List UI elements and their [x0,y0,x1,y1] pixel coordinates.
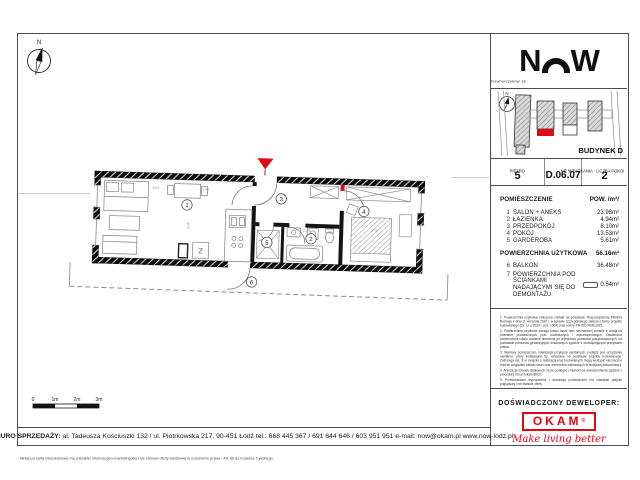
now-logo-w: W [571,49,599,73]
scale-0: 0 [32,397,35,403]
apartment-card-page: { "compass": { "label": "N" }, "scalebar… [0,0,640,480]
sidebar-unit-info: PIĘTRO 5 NR MIESZKANIA D.06.07 LICZBA PO… [490,158,627,185]
svg-text:6.03: 6.03 [152,186,159,190]
sidebar-legal-notes: 1. Powierzchnia użytkowa obliczona zosta… [490,308,627,388]
bedroom-dresser [399,215,412,237]
sales-office-bar: BIURO SPRZEDAŻY: al. Tadeusza Kościuszki… [17,427,490,445]
table-row: 6 BALKON 36.48m² [500,263,619,270]
marketing-disclaimer: Niniejsza karta mieszkaniowa ma charakte… [20,450,528,456]
sidebar-logo-section: N W Dowborczyków 18 [490,34,627,88]
scale-bar: 0 1m 2m 3m [28,395,118,415]
rooms-table-header: POMIESZCZENIE POW. /m²/ [500,196,619,203]
bedroom-bed [350,217,391,262]
room-marker-5: 5 [261,237,272,248]
site-map: N BUDYNEK D [491,89,627,158]
sidebar-rooms-table: POMIESZCZENIE POW. /m²/ 1 SALON + ANEKS … [490,185,627,308]
okam-trademark: ® [581,418,585,424]
floor-plan: Z [55,135,495,335]
sales-office-contact: al. Tadeusza Kościuszki 132 / ul. Piotrk… [63,433,514,440]
scale-1m: 1m [52,397,59,403]
room-marker-4: 4 [359,206,370,217]
sales-office-label: BIURO SPRZEDAŻY: [0,433,61,440]
chair [346,204,358,216]
svg-text:N: N [505,91,508,96]
legal-paragraph: 1. Powierzchnia użytkowa obliczona zosta… [500,316,622,328]
demountable-wall-icon [583,282,598,288]
kitchen-z-label: Z [198,248,203,255]
legal-paragraph: 2. Powierzchnia użytkowa danego lokalu m… [500,330,622,350]
legal-paragraph: 5. Przedstawione wyposażenie i aranżacja… [500,378,622,386]
unit-number-label: NR MIESZKANIA [561,169,593,174]
now-logo: N W Dowborczyków 18 [491,34,627,78]
shaft-box [178,244,187,258]
compass-rose: N [22,36,58,82]
toilet-icon [325,229,333,243]
svg-text:2.38: 2.38 [303,229,310,233]
bed-salon [104,180,149,211]
bathroom-sink-icon [287,228,300,237]
now-logo-n: N [519,49,540,73]
rooms-count-label: LICZBA POKOI [596,169,624,174]
svg-text:5.88: 5.88 [202,187,209,191]
svg-text:3.60: 3.60 [186,222,190,229]
unit-number: NR MIESZKANIA D.06.07 [545,159,582,185]
kitchen-counter [224,209,252,262]
table-row: 7 POWIERZCHNIA POD ŚCIANKAMI NADAJĄCYMI … [500,272,619,299]
table-row: 4 POKÓJ 13.53m² [500,231,619,238]
sitemap-compass-icon: N [500,91,515,112]
door-swings [227,182,364,293]
entrance-opening [255,176,277,184]
legal-paragraph: 4. Aranżacja ścianek działowych może pod… [500,369,622,377]
rooms-header-area: POW. /m²/ [590,196,619,203]
compass-north-label: N [37,40,41,46]
interior-walls [250,182,344,265]
dimension-labels: 6.03 5.88 3.60 2.38 3.78 [151,186,379,235]
now-logo-subtitle: Dowborczyków 18 [491,79,526,84]
scale-2m: 2m [74,397,81,403]
scale-3m: 3m [96,397,103,403]
room-marker-2: 2 [306,233,317,244]
rooms-header-name: POMIESZCZENIE [500,196,590,203]
usable-area-total: POWIERZCHNIA UŻYTKOWA 56.16m² [500,250,619,258]
floor-label: PIĘTRO [510,169,525,174]
sitemap-highlighted-unit [537,129,554,136]
now-logo-arc-icon [542,58,570,73]
table-row: 5 GARDEROBA 5.61m² [500,238,619,245]
bathtub-icon [286,245,322,262]
okam-logo: OKAM® [522,412,596,431]
developer-label: DOŚWIADCZONY DEWELOPER: [491,400,627,407]
sofa [102,215,139,254]
unit-floor: PIĘTRO 5 [491,159,545,185]
room-marker-3: 3 [276,194,287,205]
legal-paragraph: 3. Wymiary pomieszczeń, lokalizacja przy… [500,351,622,367]
building-label: BUDYNEK D [578,146,623,155]
entrance-marker-icon [257,158,274,175]
room-marker-6: 6 [246,277,257,288]
sidebar-sitemap-section: N BUDYNEK D [490,88,627,158]
svg-text:3.78: 3.78 [371,229,378,233]
room-marker-1: 1 [182,200,193,211]
hall-wardrobe [310,186,338,199]
table-row: 1 SALON + ANEKS 23.98m² [500,210,619,217]
